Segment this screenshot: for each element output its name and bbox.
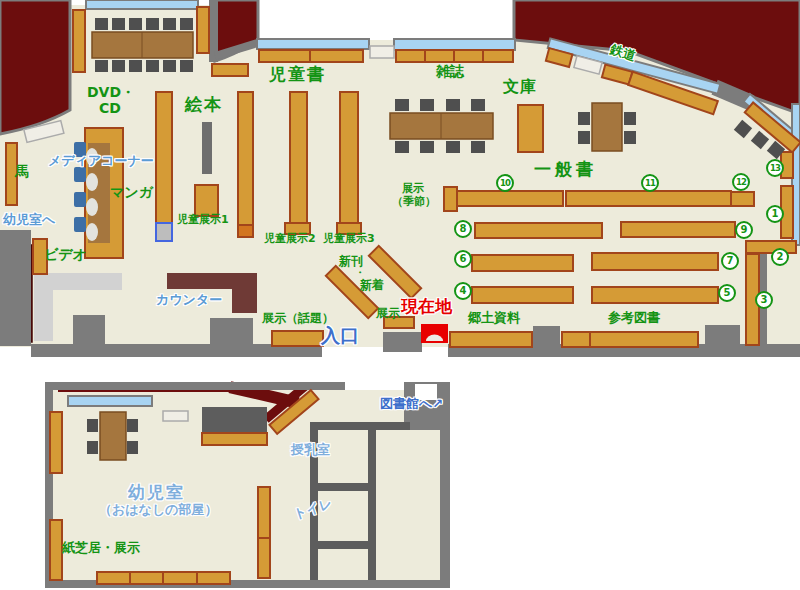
label-manga: マンガ <box>110 185 153 200</box>
shelf-number-4: 4 <box>454 282 472 300</box>
shelf-number-5: 5 <box>718 284 736 302</box>
label-cd: CD <box>99 101 121 116</box>
label-new-arrivals-1: 新刊 <box>339 255 363 268</box>
label-storytelling-room: （おはなしの部屋） <box>99 503 218 517</box>
shelf-7 <box>592 253 718 270</box>
shelf-number-13: 13 <box>766 159 784 177</box>
label-new-arrivals-dot: ・ <box>355 268 365 279</box>
label-counter: カウンター <box>156 293 222 307</box>
shelf-number-11: 11 <box>641 174 659 192</box>
vestibule-wall <box>202 407 267 433</box>
label-to-infant-room: 幼児室へ <box>3 213 55 227</box>
library-floor-map: 児童書 絵本 DVD・ CD 雑誌 文庫 鉄道 一般書 メディアコーナー マンガ… <box>0 0 800 590</box>
reference-books-shelf <box>590 332 698 347</box>
current-location-marker <box>421 324 448 343</box>
label-horse: 馬 <box>15 164 29 179</box>
shelf-number-1: 1 <box>766 205 784 223</box>
to-library-text: 図書館へ <box>380 396 432 411</box>
child-exhibit1-shelf <box>195 185 218 216</box>
label-picture-books: 絵本 <box>185 96 223 114</box>
label-child-exhibit1: 児童展示1 <box>177 214 229 226</box>
label-current-location: 現在地 <box>401 298 452 316</box>
shelf-number-6: 6 <box>454 250 472 268</box>
label-entrance: 入口 <box>321 326 359 346</box>
shelf-10 <box>457 191 563 206</box>
shelf-number-12: 12 <box>732 173 750 191</box>
shelf-8 <box>475 223 602 238</box>
label-child-exhibit2: 児童展示2 <box>264 233 316 245</box>
shelf-12 <box>731 192 754 206</box>
exhibit-topics-shelf <box>272 331 323 346</box>
shelf-number-10: 10 <box>496 174 514 192</box>
media-monitor-icon <box>86 173 98 191</box>
label-children-books: 児童書 <box>269 66 326 84</box>
label-to-library: 図書館へ↗ <box>380 397 443 411</box>
shelf-number-8: 8 <box>454 220 472 238</box>
label-kamishibai: 紙芝居・展示 <box>62 541 140 555</box>
label-infant-room: 幼児室 <box>128 484 185 502</box>
shelf-number-3: 3 <box>755 291 773 309</box>
shelf-6 <box>472 255 573 271</box>
label-new-arrivals-2: 新着 <box>360 279 384 292</box>
label-bunko: 文庫 <box>503 79 537 96</box>
shelf-9 <box>621 222 735 237</box>
shelf-5 <box>592 287 718 303</box>
label-exhibit-season-1: 展示 <box>402 183 424 195</box>
media-monitor-icon <box>86 223 98 241</box>
label-magazines: 雑誌 <box>436 64 464 79</box>
up-right-arrow-icon: ↗ <box>432 396 443 411</box>
label-child-exhibit3: 児童展示3 <box>323 233 375 245</box>
shelf-number-7: 7 <box>721 252 739 270</box>
manga-kiosk <box>156 223 172 241</box>
label-exhibit: 展示 <box>376 307 400 320</box>
local-materials-shelf <box>450 332 532 347</box>
picture-books-sign-pole <box>202 122 212 174</box>
shelf-number-2: 2 <box>771 248 789 266</box>
shelf-2 <box>746 241 796 253</box>
label-dvd: DVD・ <box>87 85 135 100</box>
label-nursing-room: 授乳室 <box>291 443 330 457</box>
shelf-4 <box>472 287 573 303</box>
shelf-11 <box>566 191 731 206</box>
label-exhibit-season-2: （季節） <box>392 196 436 208</box>
label-local-materials: 郷土資料 <box>468 311 520 325</box>
label-media-corner: メディアコーナー <box>48 154 154 168</box>
label-exhibit-topics: 展示（話題） <box>262 312 334 325</box>
shelf-number-9: 9 <box>735 221 753 239</box>
bunko-shelf <box>518 105 543 152</box>
label-reference-books: 参考図書 <box>608 311 660 325</box>
label-video: ビデオ <box>44 247 87 262</box>
label-general-books: 一般書 <box>534 161 597 179</box>
media-monitor-icon <box>86 198 98 216</box>
